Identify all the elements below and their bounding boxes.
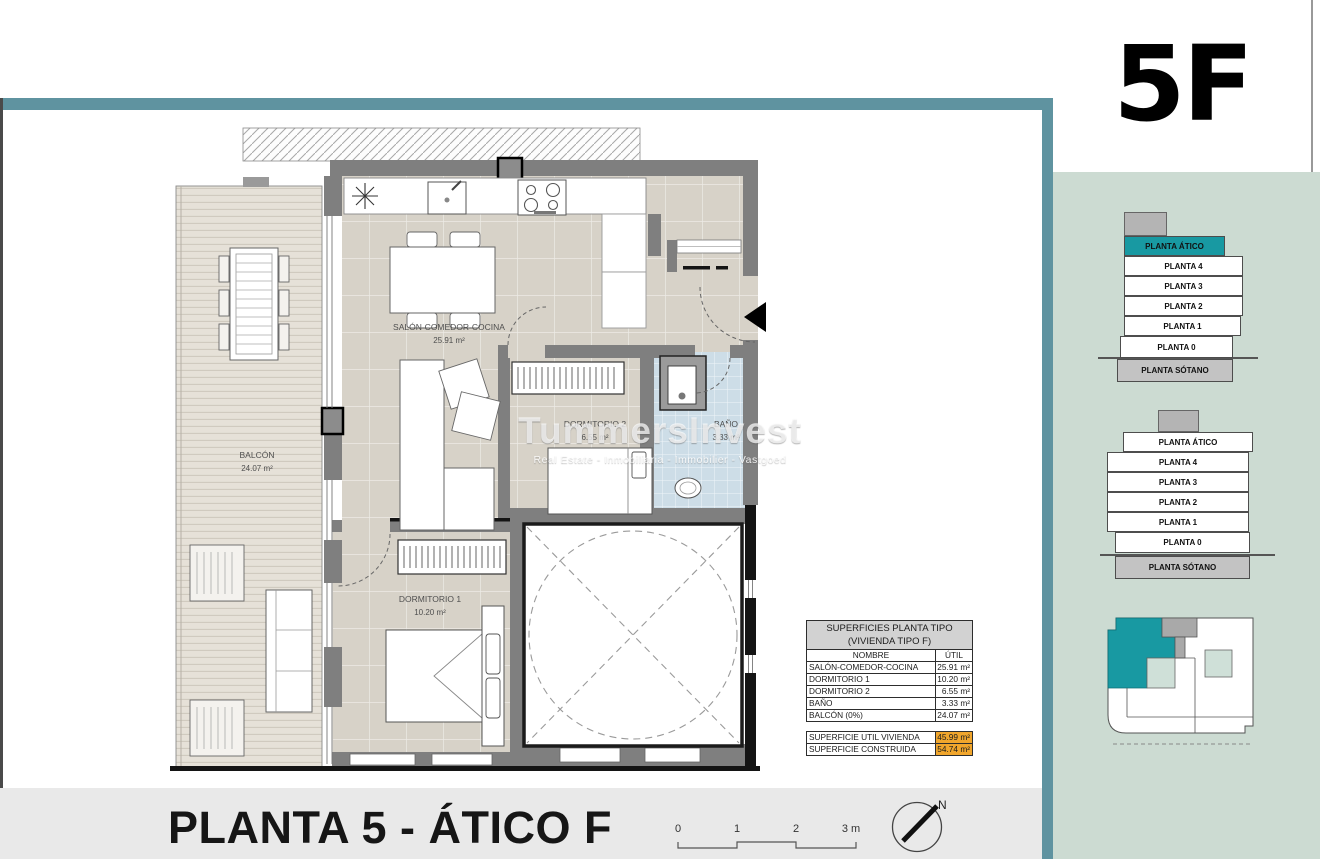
table-row: BALCÓN (0%)24.07 m² [806,710,973,722]
stack1-level-0: PLANTA 0 [1120,336,1233,358]
column [322,408,343,434]
room-label-dormitorio1: DORMITORIO 110.20 m² [399,593,461,619]
sink-icon [428,181,466,214]
stack1-level-sotano: PLANTA SÓTANO [1117,359,1233,382]
room-label-bano: BAÑO3.33 m² [712,418,739,444]
room-label-balcon: BALCÓN24.07 m² [240,449,275,475]
stack2-level-0: PLANTA 0 [1115,532,1250,553]
scale-bar: 0 1 2 3 m [675,823,860,848]
room-label-dormitorio2: DORMITORIO 26.55 m² [564,418,626,444]
svg-text:1: 1 [734,823,740,835]
stack2-level-2: PLANTA 2 [1107,492,1249,512]
stack1-level-atico: PLANTA ÁTICO [1124,236,1225,256]
floorplan-sheet: 0 1 2 3 m N SALÓN-COMEDOR-COCINA [0,0,1320,859]
stack1-roof-box [1124,212,1167,236]
room-label-salon: SALÓN-COMEDOR-COCINA25.91 m² [393,321,505,347]
svg-text:2: 2 [793,823,799,835]
stack1-level-1: PLANTA 1 [1124,316,1241,336]
key-plan [1108,618,1253,744]
light-shaft [524,524,742,746]
stack1-level-2: PLANTA 2 [1124,296,1243,316]
north-arrow: N [893,798,947,852]
surfaces-table: SUPERFICIES PLANTA TIPO(VIVIENDA TIPO F)… [806,620,973,756]
svg-text:0: 0 [675,823,681,835]
cooktop-icon [518,180,566,215]
living-furniture [390,232,500,530]
plan-drawing: 0 1 2 3 m N [0,0,1320,859]
hatch-band [243,128,640,161]
stack1-level-4: PLANTA 4 [1124,256,1243,276]
table-total-row: SUPERFICIE CONSTRUIDA54.74 m² [806,744,973,756]
stack2-roof-box [1158,410,1199,432]
svg-text:N: N [938,798,947,812]
bedroom1-furniture [386,540,506,746]
stack2-level-3: PLANTA 3 [1107,472,1249,492]
svg-text:3 m: 3 m [842,823,860,835]
stack1-level-3: PLANTA 3 [1124,276,1243,296]
surfaces-table-title: SUPERFICIES PLANTA TIPO(VIVIENDA TIPO F) [806,620,973,650]
stack2-level-atico: PLANTA ÁTICO [1123,432,1253,452]
stack2-level-4: PLANTA 4 [1107,452,1249,472]
stack2-level-sotano: PLANTA SÓTANO [1115,556,1250,579]
stack2-level-1: PLANTA 1 [1107,512,1249,532]
